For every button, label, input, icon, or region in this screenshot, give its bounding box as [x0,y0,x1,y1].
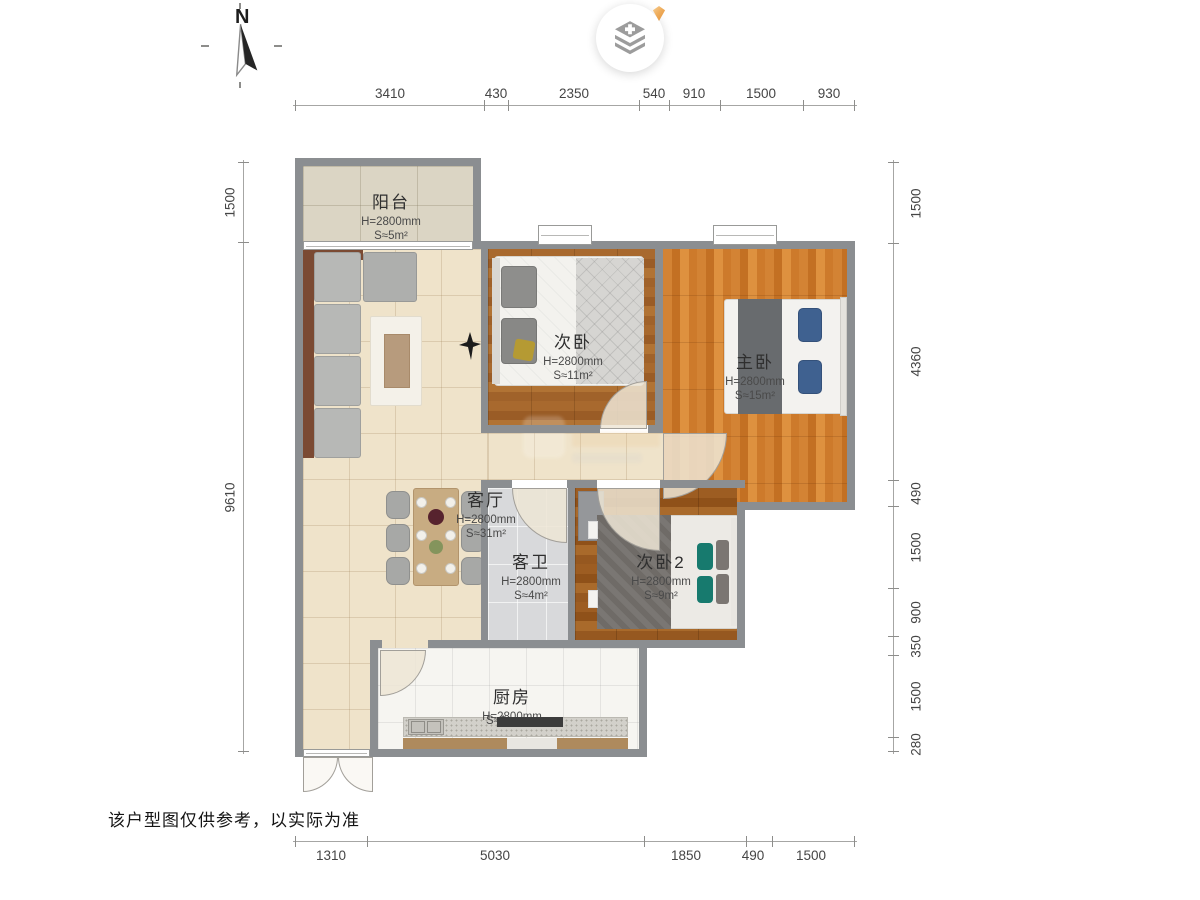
compass-needle-icon [216,22,272,80]
dimension-tick [888,162,899,163]
wall-entry-stub [295,749,303,757]
dim-left-1: 9610 [223,468,238,528]
table-plant [429,540,443,554]
dimension-tick [888,737,899,738]
wall-kitchen-bottom [370,749,647,757]
kitchen-sink-basin [411,721,425,733]
room-name: 客厅 [431,486,541,511]
bedroom2nd-pillow [501,266,537,308]
bedroom2nd-window [538,225,592,245]
wall-master-left [655,249,663,433]
room-name: 主卧 [700,348,810,373]
dining-chair [386,524,410,552]
dimension-tick [238,751,249,752]
dimension-tick [484,100,485,111]
entry-door-right-arc [338,757,373,792]
dimension-tick [644,836,645,847]
dimension-tick [238,162,249,163]
room-label-master: 主卧 H=2800mm S≈15m² [700,348,810,403]
wall-bedroom2nd-bottom [488,425,600,433]
wall-hall-bottom-b [567,480,597,488]
room-height: H=2800mm [336,215,446,229]
room-name: 客卫 [476,548,586,573]
wall-outer-right-upper [847,241,855,510]
dimension-tick [888,506,899,507]
dim-bottom-4: 1500 [781,848,841,863]
dimension-tick [888,480,899,481]
app-logo [596,4,664,72]
room-area: S≈4m² [476,589,586,603]
room-area: S≈9m² [606,589,716,603]
plate [416,563,427,574]
entry-threshold [303,749,370,757]
dim-right-0: 1500 [909,174,924,234]
wall-bedroom2nd-bottom-stub [648,425,655,433]
dim-top-5: 1500 [731,86,791,101]
dining-chair [386,557,410,585]
sofa-cushion [314,304,361,354]
wall-balcony-top [295,158,481,166]
dimension-tick [854,100,855,111]
room-area: S≈11m² [518,369,628,383]
room-height: H=2800mm [476,575,586,589]
dimension-tick [803,100,804,111]
dim-right-7: 280 [909,715,924,775]
room-label-bedroom2nd: 次卧 H=2800mm S≈11m² [518,328,628,383]
dimension-tick [888,751,899,752]
coffee-table [384,334,410,388]
room-name: 阳台 [336,188,446,213]
bedroom3rd-pillow [716,540,729,570]
dimension-tick [508,100,509,111]
room-label-bathroom: 客卫 H=2800mm S≈4m² [476,548,586,603]
dimension-tick [295,100,296,111]
kitchen-sink-basin [427,721,441,733]
plate [416,497,427,508]
dim-right-1: 4360 [909,332,924,392]
dimension-line [293,105,857,106]
compass-tick-west [201,45,209,47]
wall-balcony-right [473,158,481,249]
sofa-chaise [363,252,417,302]
dimension-tick [888,588,899,589]
room-name: 次卧 [518,328,628,353]
wall-outer-left [295,158,303,755]
room-height: H=2800mm [431,513,541,527]
kitchen-hood-bar [497,717,563,727]
room-label-balcony: 阳台 H=2800mm S≈5m² [336,188,446,243]
dining-chair [386,491,410,519]
watermark-logo [523,416,565,458]
wall-kitchen-right [639,640,647,757]
dimension-tick [238,242,249,243]
bedroom3rd-pillow [716,574,729,604]
dim-bottom-2: 1850 [656,848,716,863]
dim-right-2: 490 [909,464,924,524]
disclaimer-text: 该户型图仅供参考，以实际为准 [108,806,360,831]
wall-step-lower [647,640,745,648]
room-name: 厨房 [457,683,567,708]
watermark-url-blur [572,453,642,463]
dimension-line [893,160,894,754]
master-window [713,225,777,245]
room-name: 次卧2 [606,548,716,573]
wall-kitchen-top [428,640,647,648]
dimension-tick [295,836,296,847]
dimension-tick [746,836,747,847]
dimension-line [243,160,244,754]
sofa-cushion [314,252,361,302]
dim-bottom-0: 1310 [301,848,361,863]
dimension-tick [639,100,640,111]
room-area: S≈31m² [431,527,541,541]
room-height: H=2800mm [518,355,628,369]
watermark-text-blur [572,432,660,447]
wall-kitchen-top-left [370,640,382,648]
dim-bottom-3: 490 [723,848,783,863]
bedroom3rd-bench [588,521,598,539]
wall-step-upper [745,502,855,510]
dimension-tick [854,836,855,847]
room-area: S≈15m² [700,389,810,403]
room-area: S≈5m² [336,229,446,243]
dimension-tick [888,636,899,637]
room-label-bedroom3rd: 次卧2 H=2800mm S≈9m² [606,548,716,603]
entry-door-left-arc [303,757,338,792]
wall-hall-bottom-c [660,480,745,488]
layers-plus-icon [610,17,650,59]
room-label-living: 客厅 H=2800mm S≈31m² [431,486,541,541]
sofa-cushion [314,356,361,406]
compass-tick-east [274,45,282,47]
sofa-cushion [314,408,361,458]
compass-tick-south [239,82,241,88]
wall-living-kitchen [370,648,378,749]
wall-outer-right-mid [737,502,745,648]
master-pillow [798,308,822,342]
bird-icon [458,330,482,362]
master-headboard [840,297,847,416]
room-height: H=2800mm [700,375,810,389]
dimension-tick [367,836,368,847]
dim-top-4: 910 [664,86,724,101]
bedroom3rd-bench [588,590,598,608]
plate [445,563,456,574]
wall-living-bedroom2nd [481,249,488,433]
dimension-tick [888,655,899,656]
dimension-tick [669,100,670,111]
dim-left-0: 1500 [223,173,238,233]
dim-bottom-1: 5030 [465,848,525,863]
dim-top-1: 430 [466,86,526,101]
sofa-back [303,250,314,458]
room-height: H=2800mm [606,575,716,589]
bedroom2nd-headboard [492,258,500,384]
dimension-tick [888,243,899,244]
dimension-tick [720,100,721,111]
floorplan-page: N 3410 430 2350 [0,0,1200,900]
dimension-tick [772,836,773,847]
plate [416,530,427,541]
dim-right-3: 1500 [909,518,924,578]
dim-top-0: 3410 [360,86,420,101]
dim-top-6: 930 [799,86,859,101]
dim-top-2: 2350 [544,86,604,101]
